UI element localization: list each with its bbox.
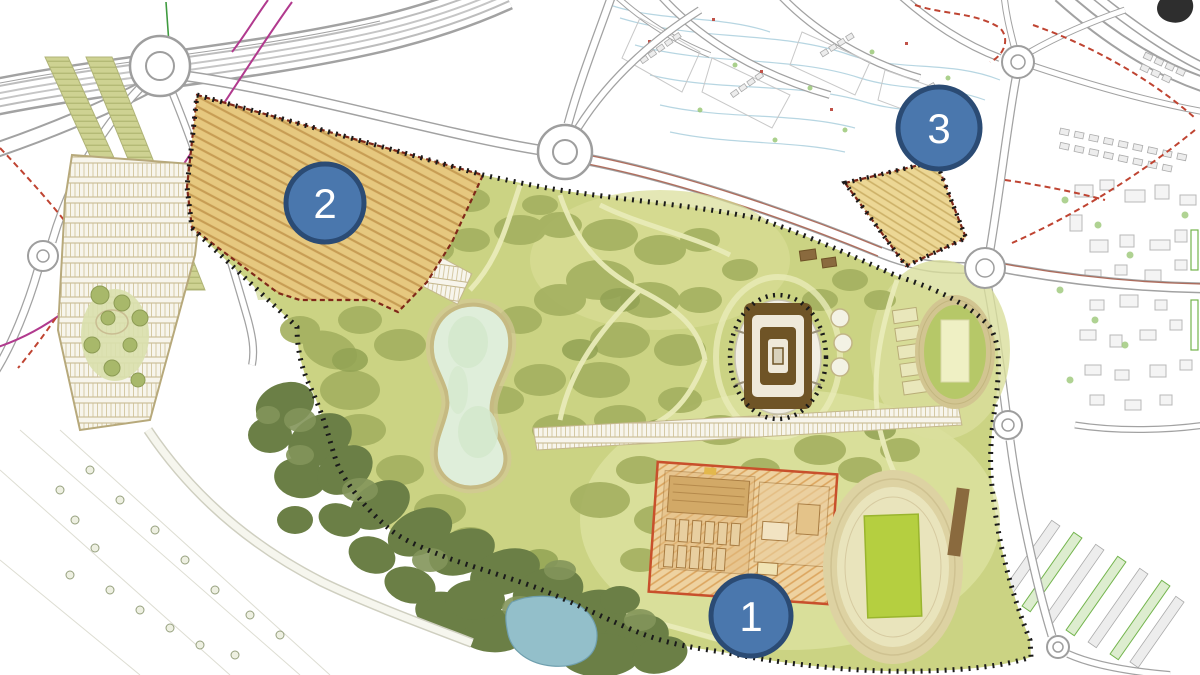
roundabout-northeast (1002, 46, 1034, 78)
roundabout-small-west (28, 241, 58, 271)
stadium-central (730, 295, 826, 419)
marker-1-label: 1 (739, 593, 762, 640)
roundabout-southeast (994, 411, 1022, 439)
roundabout-west (130, 36, 190, 96)
site-plan-map: 1 2 3 (0, 0, 1200, 675)
marker-3-badge[interactable]: 3 (898, 87, 980, 169)
marker-3-label: 3 (927, 105, 950, 152)
roundabout-north-central (538, 125, 592, 179)
roundabout-east (965, 248, 1005, 288)
marker-2-label: 2 (313, 180, 336, 227)
athletics-track-north (892, 295, 995, 409)
marker-2-badge[interactable]: 2 (286, 164, 364, 242)
lake (432, 305, 510, 488)
picnic-circles (831, 309, 852, 376)
roundabout-south-far (1047, 636, 1069, 658)
marker-1-badge[interactable]: 1 (711, 576, 791, 656)
